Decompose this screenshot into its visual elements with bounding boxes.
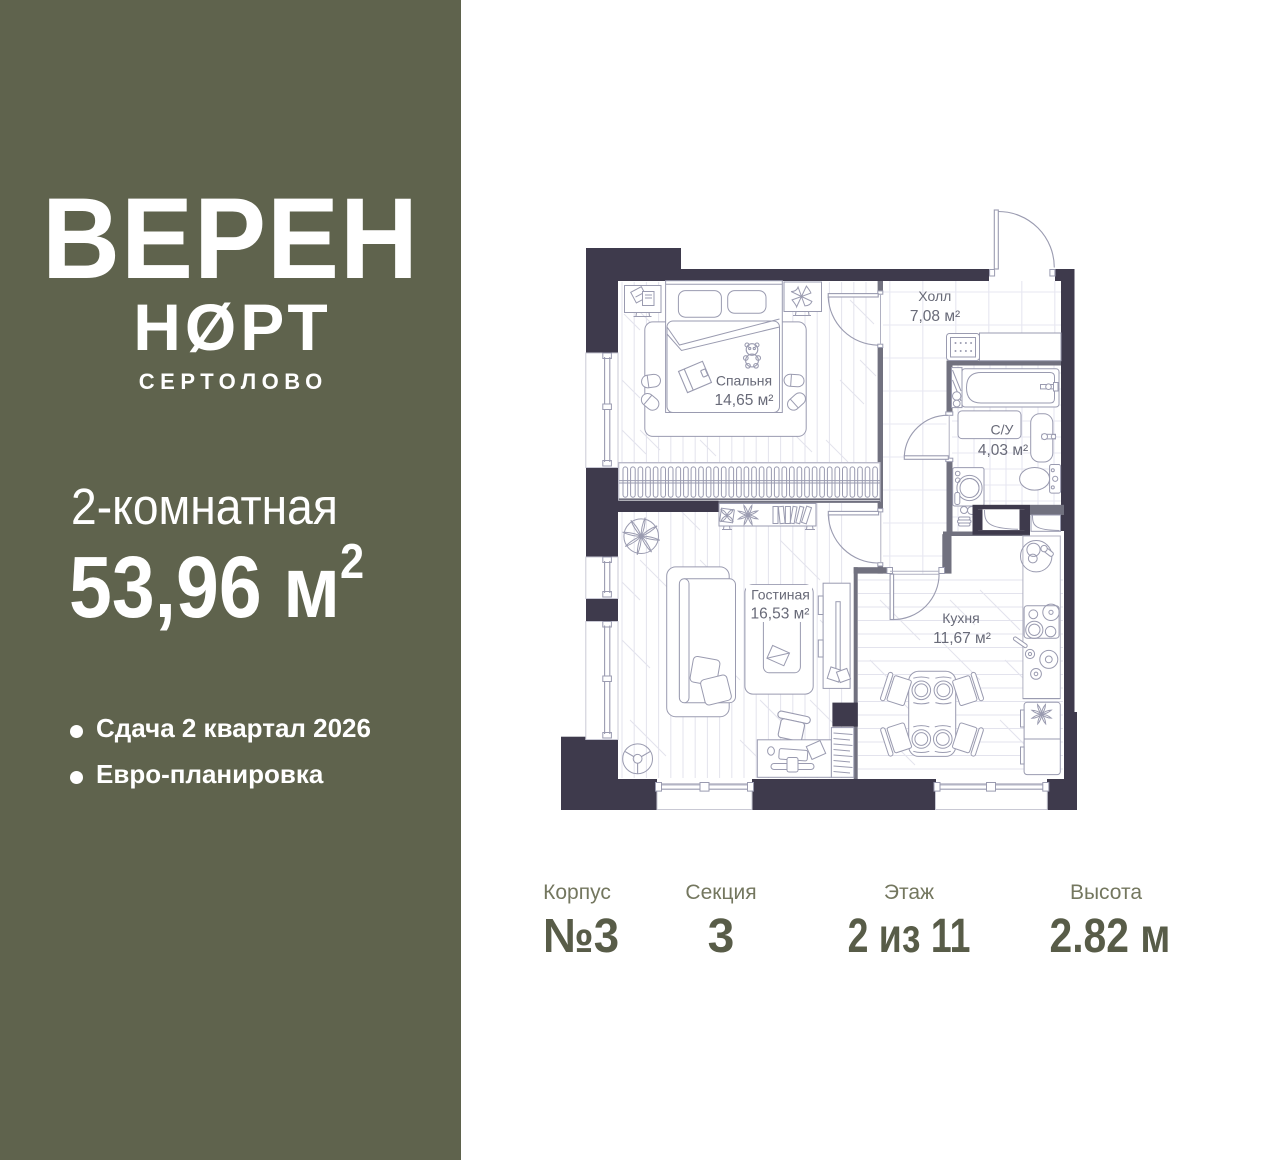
svg-text:Холл: Холл [918, 288, 951, 304]
svg-text:Кухня: Кухня [942, 610, 979, 626]
svg-text:16,53 м²: 16,53 м² [751, 606, 810, 623]
svg-text:11,67 м²: 11,67 м² [933, 630, 991, 647]
svg-text:С/У: С/У [991, 422, 1014, 438]
svg-text:14,65 м²: 14,65 м² [715, 392, 774, 409]
svg-text:7,08 м²: 7,08 м² [910, 308, 960, 325]
svg-text:Гостиная: Гостиная [751, 587, 810, 603]
svg-text:Спальня: Спальня [716, 373, 772, 389]
svg-text:4,03 м²: 4,03 м² [978, 442, 1028, 459]
